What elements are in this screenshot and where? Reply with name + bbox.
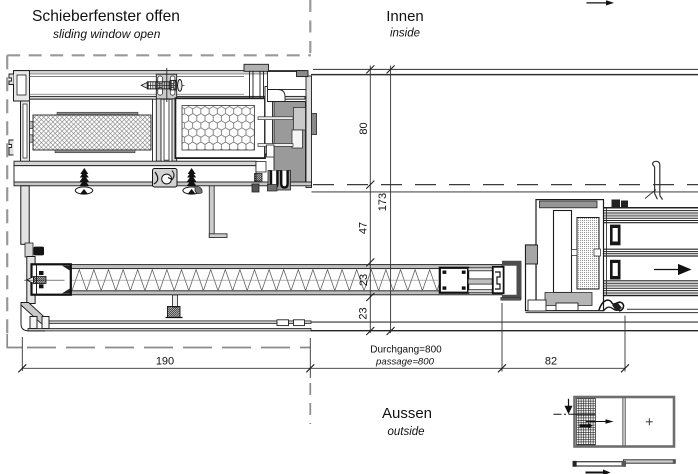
svg-text:Innen: Innen: [386, 8, 424, 25]
svg-text:23: 23: [358, 274, 370, 286]
svg-text:47: 47: [358, 222, 370, 234]
svg-text:outside: outside: [387, 426, 424, 438]
svg-text:Schieberfenster offen: Schieberfenster offen: [32, 8, 180, 25]
svg-text:inside: inside: [390, 28, 420, 40]
svg-text:Aussen: Aussen: [382, 405, 432, 422]
svg-text:190: 190: [156, 356, 174, 368]
svg-text:passage=800: passage=800: [375, 357, 435, 368]
svg-text:Durchgang=800: Durchgang=800: [370, 345, 442, 356]
svg-text:80: 80: [358, 122, 370, 134]
svg-text:23: 23: [358, 307, 370, 319]
svg-text:sliding window open: sliding window open: [53, 27, 161, 41]
svg-text:82: 82: [545, 356, 557, 368]
svg-text:173: 173: [377, 193, 389, 211]
